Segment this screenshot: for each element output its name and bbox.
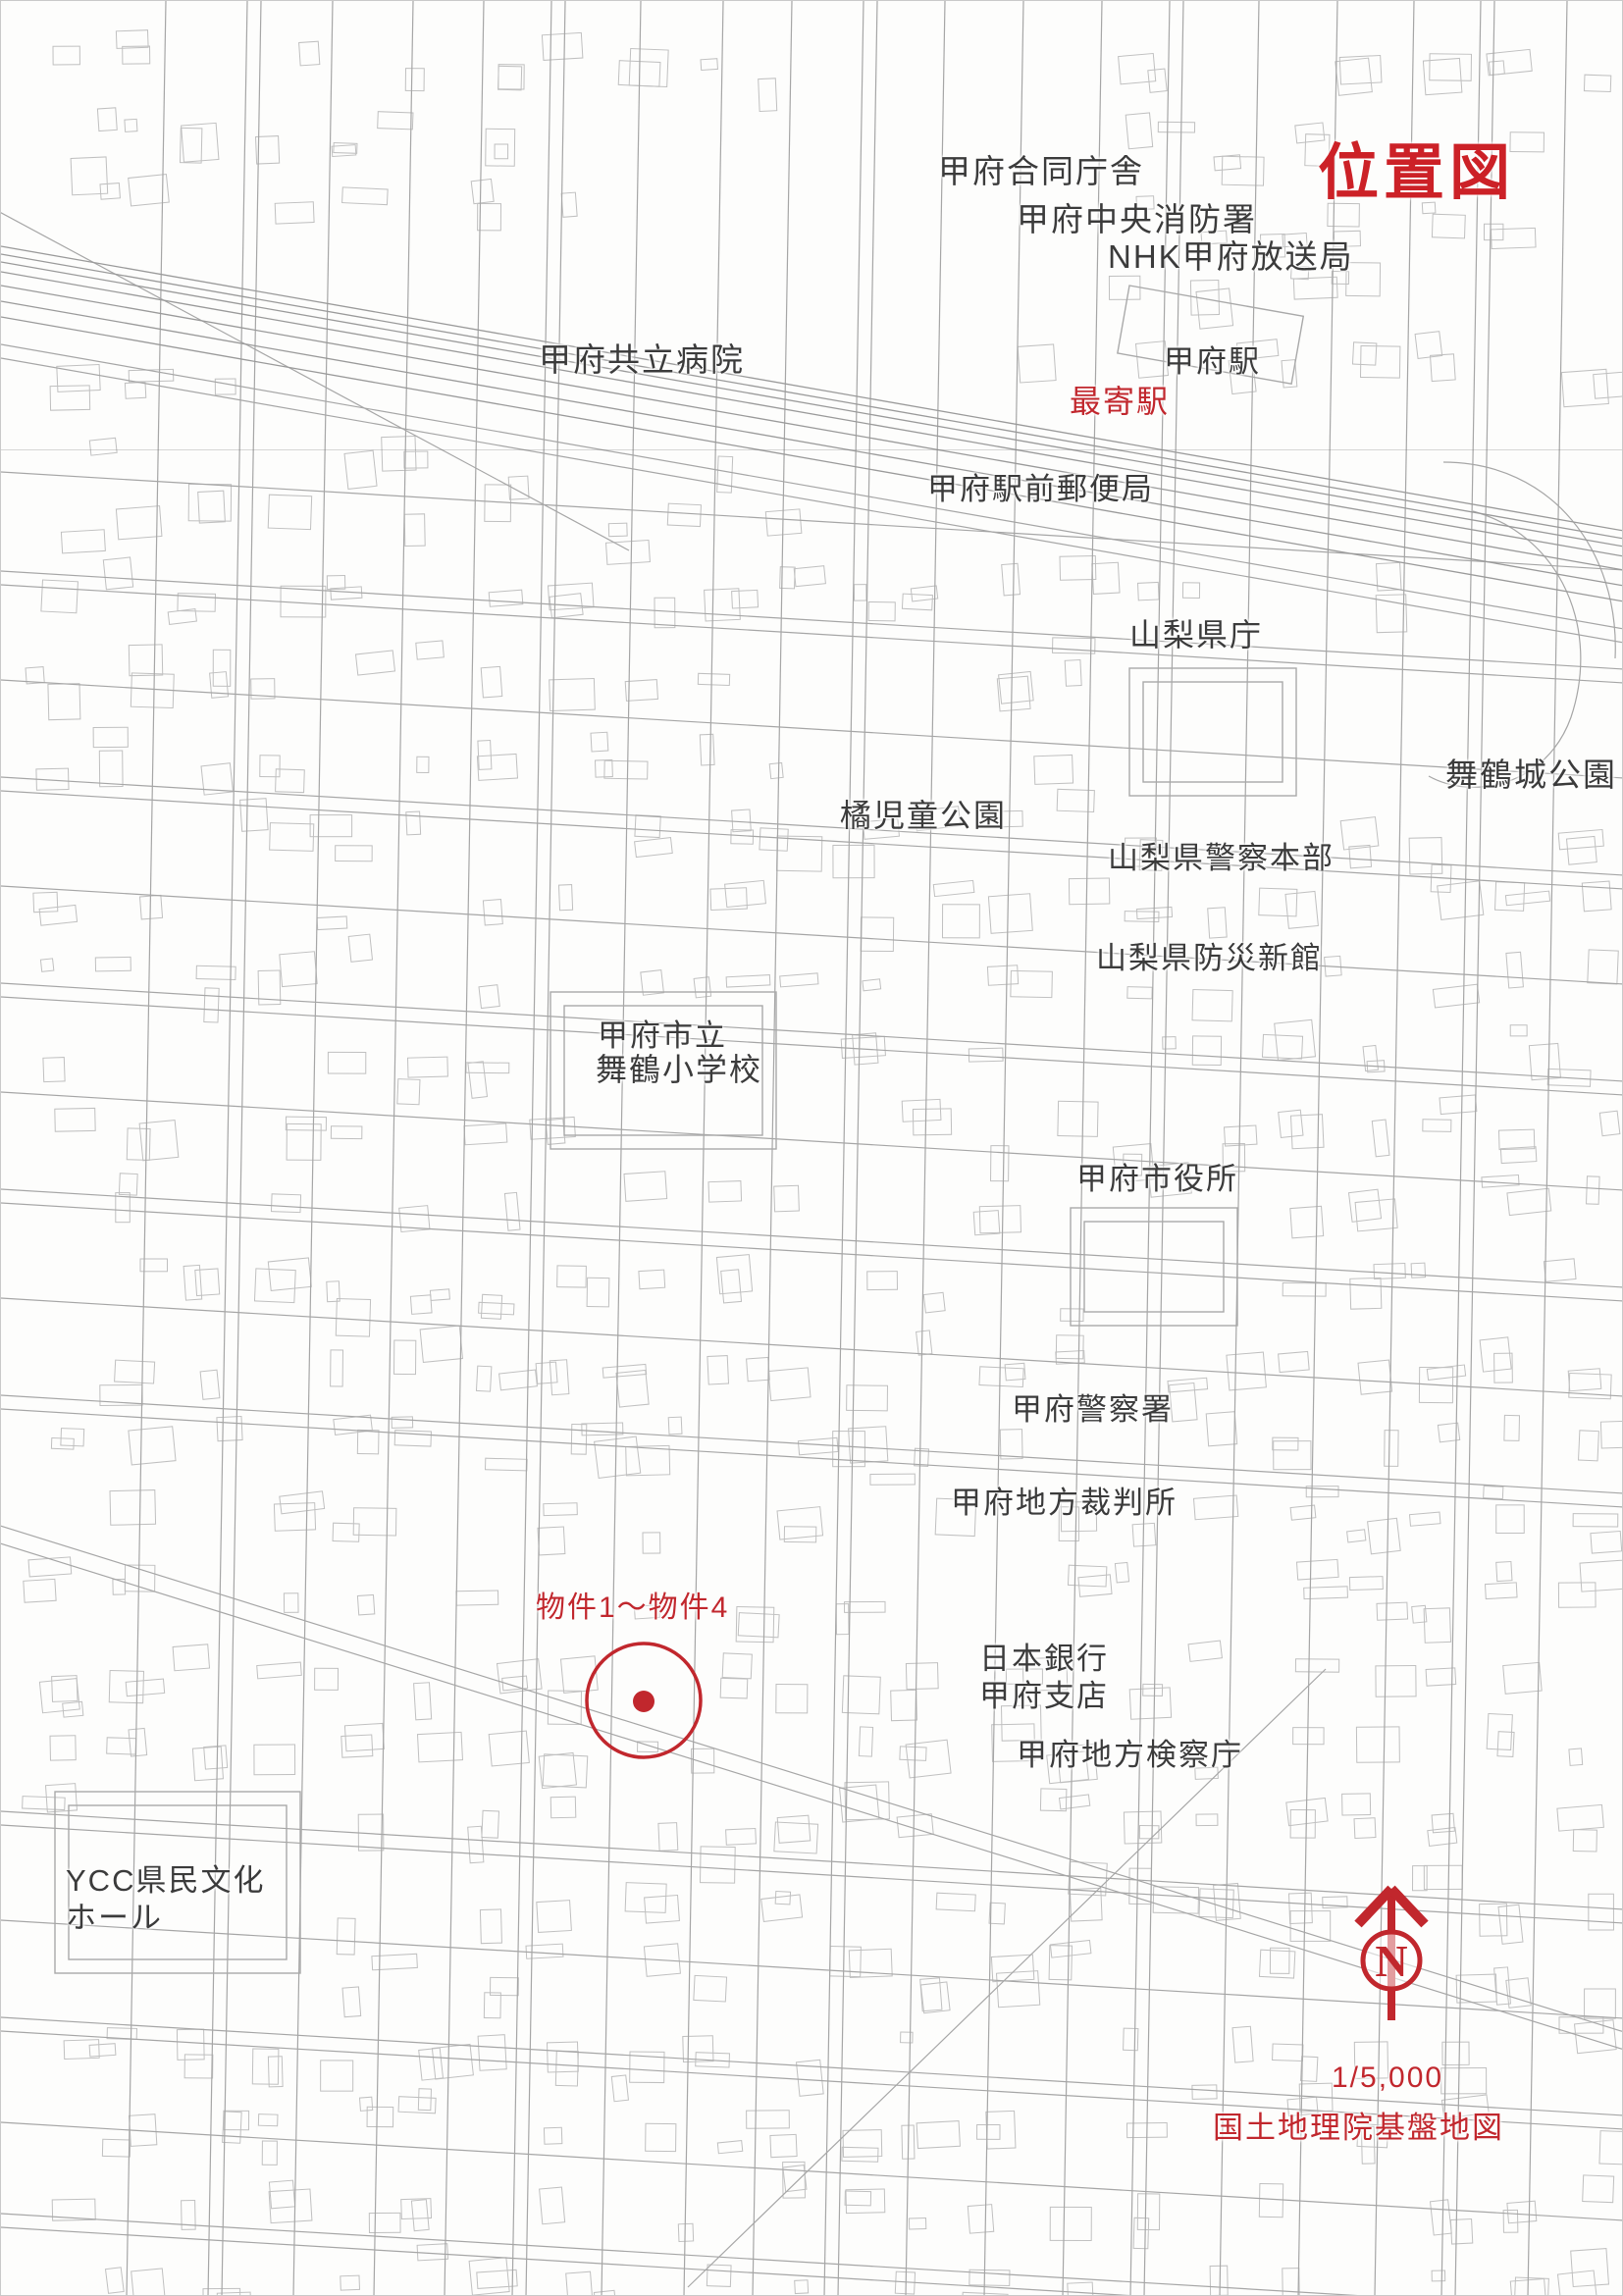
- label-maizuru-castle-park: 舞鶴城公園: [1445, 757, 1623, 794]
- compass-circle: [1363, 1932, 1420, 1989]
- label-map-source: 国土地理院基盤地図: [1213, 2112, 1504, 2146]
- map-title: 位置図: [1318, 123, 1515, 211]
- label-tachibana-park: 橘児童公園: [840, 799, 1007, 834]
- label-property-range: 物件1～物件4: [536, 1592, 729, 1625]
- map-background: [1, 1, 1623, 2296]
- location-map-page: N 位置図 甲府合同庁舎 甲府中央消防署 NHK甲府放送局 甲府共立病院 甲府駅…: [0, 0, 1623, 2296]
- label-map-scale: 1/5,000: [1332, 2061, 1443, 2095]
- label-chuo-fire-station: 甲府中央消防署: [1017, 202, 1257, 238]
- label-pref-office: 山梨県庁: [1129, 618, 1263, 653]
- label-pref-police-hq: 山梨県警察本部: [1108, 842, 1335, 876]
- label-bank-of-japan-line2: 甲府支店: [979, 1680, 1109, 1714]
- label-bank-of-japan-line1: 日本銀行: [979, 1643, 1109, 1677]
- label-kyoritsu-hospital: 甲府共立病院: [539, 342, 745, 379]
- label-ycc-hall-line1: YCC県民文化: [66, 1864, 265, 1899]
- label-kofu-station: 甲府駅: [1164, 345, 1261, 380]
- label-kofu-police: 甲府警察署: [1012, 1393, 1174, 1428]
- label-nearest-station: 最寄駅: [1070, 385, 1170, 420]
- north-letter: N: [1375, 1936, 1407, 1986]
- label-district-court: 甲府地方裁判所: [951, 1487, 1178, 1521]
- label-nhk-kofu: NHK甲府放送局: [1108, 239, 1354, 276]
- label-station-post-office: 甲府駅前郵便局: [927, 473, 1154, 507]
- label-maizuru-elementary-line1: 甲府市立: [598, 1019, 727, 1054]
- property-location-circle: [587, 1644, 701, 1757]
- scan-fold-line: [1, 449, 1622, 450]
- compass-arrow-head: [1358, 1889, 1425, 1924]
- map-annotations-overlay: N: [1, 1, 1623, 2296]
- label-ycc-hall-line2: ホール: [66, 1902, 163, 1936]
- north-compass: N: [1358, 1889, 1425, 2020]
- label-district-prosecutors: 甲府地方検察庁: [1017, 1739, 1243, 1773]
- label-godo-chosha: 甲府合同庁舎: [938, 154, 1144, 190]
- label-pref-bosai-shinkan: 山梨県防災新館: [1096, 942, 1323, 976]
- label-city-hall: 甲府市役所: [1076, 1163, 1238, 1197]
- property-location-dot: [633, 1691, 654, 1712]
- label-maizuru-elementary-line2: 舞鶴小学校: [596, 1053, 762, 1088]
